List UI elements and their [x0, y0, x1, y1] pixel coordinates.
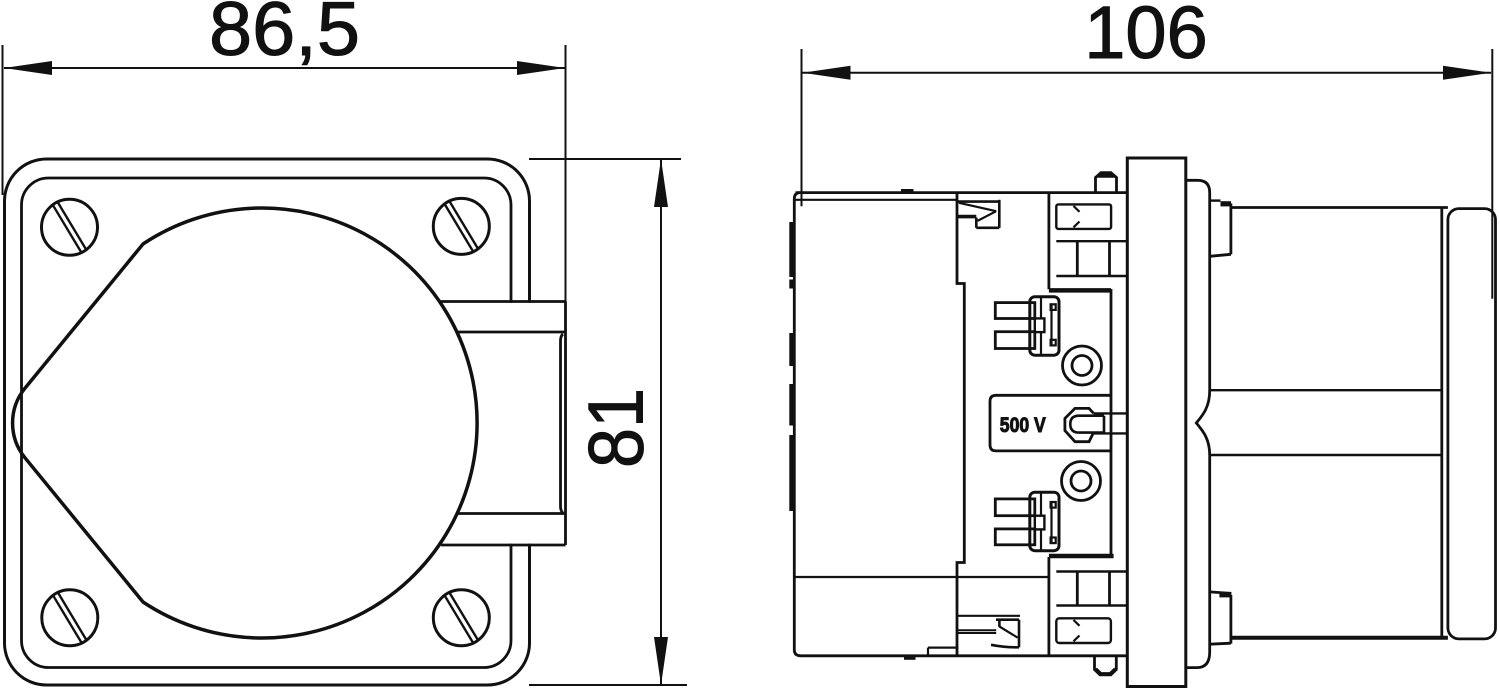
- svg-text:86,5: 86,5: [209, 0, 360, 72]
- svg-text:81: 81: [572, 388, 660, 468]
- svg-text:106: 106: [1084, 0, 1207, 74]
- svg-text:500 V: 500 V: [1000, 414, 1046, 437]
